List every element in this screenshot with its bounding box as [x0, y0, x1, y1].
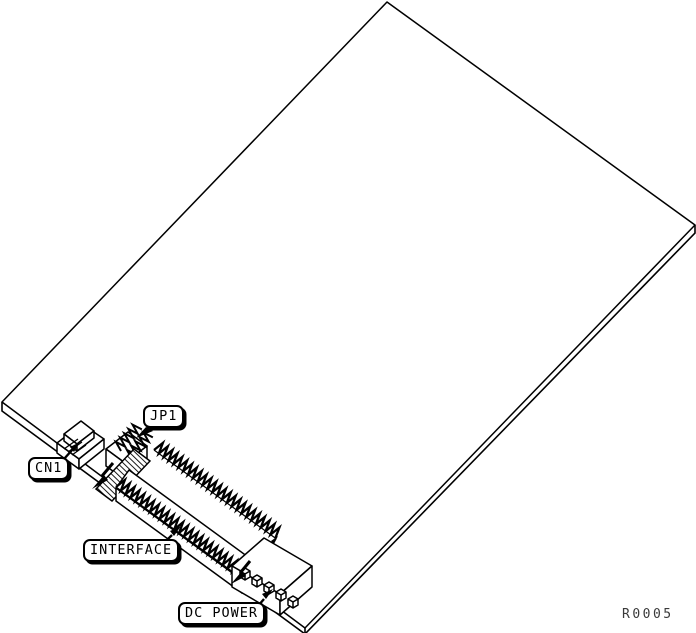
cn1-callout-label: CN1 [28, 457, 69, 480]
figure-reference-code: R0005 [622, 607, 674, 622]
interface-callout-label: INTERFACE [83, 539, 179, 562]
jp1-callout-label: JP1 [143, 405, 184, 428]
board-diagram-figure: JP1 CN1 INTERFACE DC POWER R0005 [0, 0, 696, 633]
dc-power-callout-label: DC POWER [178, 602, 265, 625]
